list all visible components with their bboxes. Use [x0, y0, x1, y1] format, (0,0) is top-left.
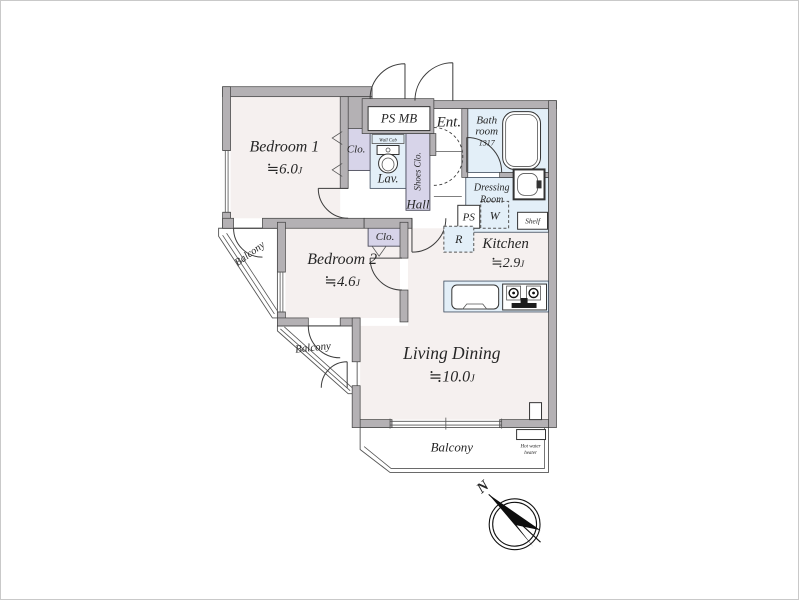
bathroom-size-code: 1317: [479, 139, 496, 148]
bathtub-icon: [503, 112, 541, 170]
wall-segment: [277, 222, 285, 272]
kitchen-size: ≒2.9J: [491, 256, 525, 271]
wall-segment: [223, 87, 373, 97]
meter-box-door: [370, 64, 405, 99]
wall-segment: [400, 222, 408, 258]
main-balcony-label: Balcony: [431, 439, 474, 454]
living-dining-label: Living Dining: [402, 343, 501, 363]
shoes-closet-door-swing: [434, 128, 463, 157]
pipe-shaft-label: PS: [462, 211, 476, 223]
bedroom1-floor: [231, 97, 341, 219]
bedroom2-window: [277, 272, 285, 312]
floor-plan: Bedroom 1 ≒6.0J Bedroom 2 ≒4.6J Living D…: [1, 1, 798, 599]
wall-segment: [549, 101, 557, 428]
compass-north-label: N: [473, 477, 493, 498]
stove-burner-left-dot: [512, 292, 515, 295]
wash-basin-faucet-icon: [537, 180, 542, 188]
shoes-closet-door-swing: [434, 156, 463, 185]
hot-water-heater-label-1: Hot water: [520, 445, 541, 450]
hot-water-heater-box: [517, 430, 546, 440]
entrance-step-line: [434, 151, 462, 196]
wall-segment: [223, 218, 234, 228]
wall-segment: [360, 420, 392, 428]
toilet-bowl-icon: [379, 154, 398, 173]
stove-burner-right-dot: [532, 292, 535, 295]
corner-pipe-box: [530, 403, 542, 420]
bedroom2-size: ≒4.6J: [324, 274, 360, 290]
wall-segment: [500, 420, 549, 428]
lavatory-label: Lav.: [377, 171, 399, 185]
wall-segment: [352, 386, 360, 428]
floor-plan-canvas: Bedroom 1 ≒6.0J Bedroom 2 ≒4.6J Living D…: [0, 0, 799, 600]
kitchen-sink-icon: [452, 285, 499, 309]
shelf-label: Shelf: [525, 216, 541, 225]
bathroom-label-2: room: [475, 126, 498, 138]
bedroom1-label: Bedroom 1: [249, 138, 319, 155]
wall-segment: [277, 318, 308, 326]
bedroom1-size: ≒6.0J: [267, 161, 303, 177]
refrigerator-label: R: [454, 232, 463, 246]
wall-segment: [400, 290, 408, 322]
hot-water-heater-label-2: heater: [524, 451, 537, 456]
stove-grill-icon: [512, 303, 537, 308]
hall-label: Hall: [405, 196, 429, 211]
closet1-label: Clo.: [347, 143, 366, 155]
toilet-tank-icon: [377, 146, 399, 155]
living-dining-size: ≒10.0J: [429, 369, 475, 386]
kitchen-label: Kitchen: [481, 236, 528, 252]
wall-segment: [434, 101, 557, 109]
bedroom2-label: Bedroom 2: [307, 251, 377, 268]
shoes-closet-label: Shoes Clo.: [412, 152, 422, 190]
washer-label: W: [490, 208, 501, 222]
lower-balcony: [277, 326, 357, 394]
wall-segment: [430, 134, 436, 156]
meter-box-label: PS MB: [380, 111, 417, 126]
entrance-door: [415, 63, 453, 101]
wall-segment: [223, 87, 231, 151]
wall-cabinet-label: Wall Cab: [379, 139, 397, 144]
dressing-room-label-2: Room: [479, 194, 503, 205]
entrance-label: Ent.: [436, 115, 461, 131]
compass: N: [473, 477, 540, 550]
dressing-room-label-1: Dressing: [473, 182, 510, 193]
bedroom1-window: [223, 151, 231, 213]
closet2-label: Clo.: [376, 231, 395, 243]
wall-segment: [352, 318, 360, 362]
stove-control-icon: [521, 298, 528, 303]
